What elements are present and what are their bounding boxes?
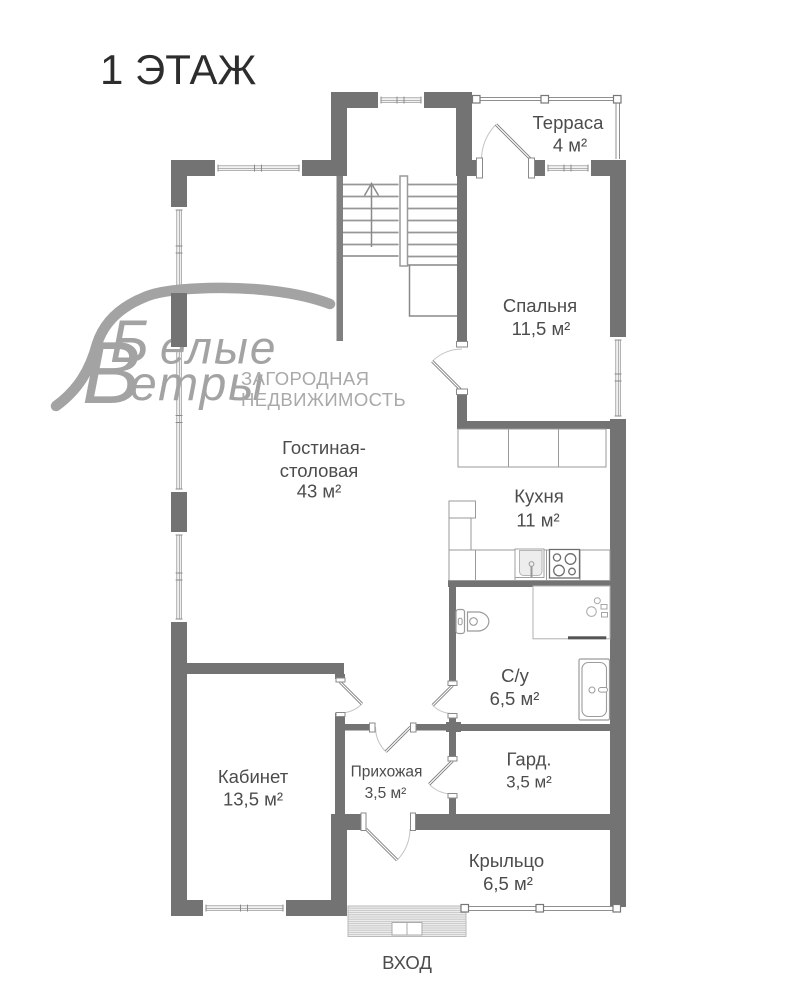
svg-text:Кухня: Кухня — [514, 486, 564, 507]
svg-text:4 м²: 4 м² — [553, 135, 587, 156]
svg-text:13,5 м²: 13,5 м² — [223, 789, 283, 810]
svg-text:3,5 м²: 3,5 м² — [365, 785, 407, 802]
svg-text:3,5 м²: 3,5 м² — [506, 773, 552, 792]
svg-text:столовая: столовая — [280, 460, 359, 481]
svg-text:ВХОД: ВХОД — [382, 952, 432, 973]
svg-text:ЗАГОРОДНАЯ: ЗАГОРОДНАЯ — [241, 368, 369, 389]
svg-text:НЕДВИЖИМОСТЬ: НЕДВИЖИМОСТЬ — [241, 389, 406, 410]
svg-text:6,5 м²: 6,5 м² — [483, 873, 533, 894]
svg-text:Гостиная-: Гостиная- — [282, 437, 366, 458]
svg-text:Гард.: Гард. — [506, 749, 551, 770]
svg-text:Кабинет: Кабинет — [218, 766, 289, 787]
svg-text:Терраса: Терраса — [533, 112, 605, 133]
svg-text:1 ЭТАЖ: 1 ЭТАЖ — [100, 46, 256, 93]
svg-text:43 м²: 43 м² — [297, 481, 342, 502]
svg-text:11 м²: 11 м² — [516, 510, 559, 531]
svg-text:Прихожая: Прихожая — [351, 764, 423, 781]
svg-text:С/у: С/у — [501, 665, 530, 686]
svg-text:11,5 м²: 11,5 м² — [512, 318, 571, 339]
svg-text:Крыльцо: Крыльцо — [469, 850, 544, 871]
svg-text:6,5 м²: 6,5 м² — [490, 688, 540, 709]
svg-text:Спальня: Спальня — [503, 295, 577, 316]
